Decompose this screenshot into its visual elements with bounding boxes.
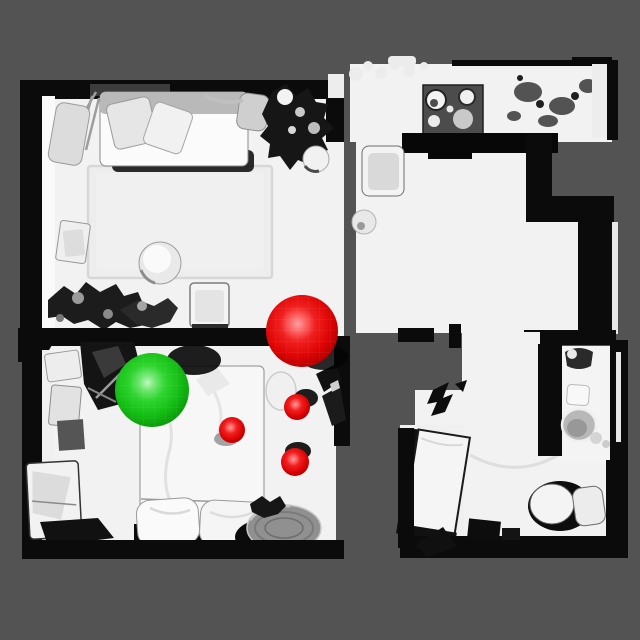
- corner-wall-top: [572, 57, 612, 64]
- couch: [100, 92, 270, 172]
- wall-outer-sliver: [612, 222, 618, 334]
- hall-bottom-wall: [398, 328, 434, 342]
- vanity-left-wall: [538, 344, 562, 456]
- scene-render: [0, 0, 640, 640]
- corner-wall: [607, 60, 618, 140]
- stove-cooktop: [423, 85, 483, 134]
- wall-outer-sliver: [616, 352, 621, 442]
- red-large-facet-overlay: [266, 295, 338, 367]
- red-small-floor-lower-sphere: [281, 448, 309, 476]
- hall-floor-extension: [528, 218, 580, 333]
- toilet-tank: [572, 485, 607, 527]
- hall-table: [362, 146, 404, 196]
- hall-bottom-wall: [449, 324, 461, 348]
- stool: [303, 146, 329, 172]
- floor-debris: [502, 528, 520, 540]
- burner: [428, 115, 440, 127]
- red-small-bed-sphere: [219, 417, 245, 443]
- kitchen-hall: [349, 56, 618, 348]
- hall-stool: [352, 210, 376, 234]
- burner: [459, 89, 475, 105]
- wall-top-sliver: [328, 74, 344, 98]
- pillow: [135, 497, 200, 547]
- red-small-floor-upper-sphere: [284, 394, 310, 420]
- ottoman: [139, 242, 181, 284]
- living-room-right-wall-segment: [326, 96, 344, 142]
- bathroom-left-wall: [398, 428, 414, 548]
- dark-box: [57, 419, 85, 451]
- green-large-facet-overlay: [115, 353, 189, 427]
- storage-box: [44, 350, 82, 382]
- toilet: [528, 481, 606, 531]
- scan-viewport: [0, 0, 640, 640]
- bedroom-bottom-wall: [22, 540, 344, 559]
- pot: [453, 109, 473, 129]
- storage-box: [63, 229, 86, 257]
- side-table: [190, 283, 229, 329]
- living-room-left-wall: [20, 80, 42, 346]
- floor-debris: [467, 518, 501, 541]
- kitchen-wall-tab: [428, 150, 472, 159]
